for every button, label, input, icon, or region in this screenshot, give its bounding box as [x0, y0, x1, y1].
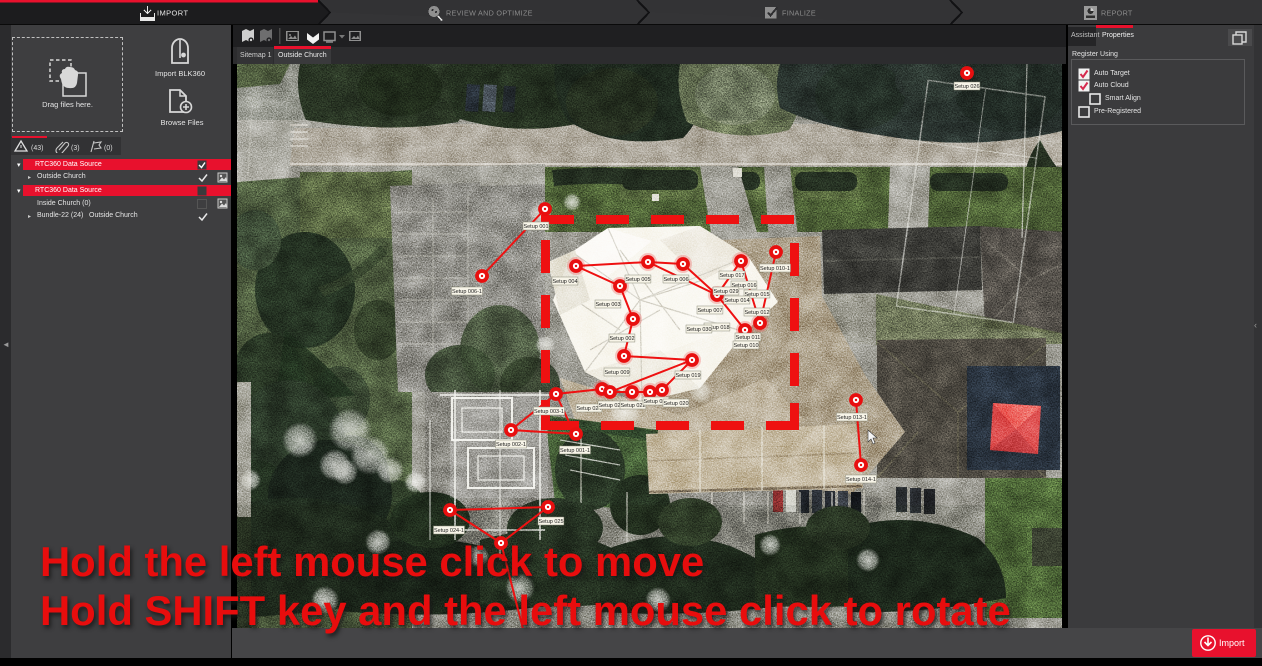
svg-text:Setup 004: Setup 004 [552, 279, 577, 285]
svg-text:Setup 014-1: Setup 014-1 [846, 477, 876, 483]
svg-text:Setup 009: Setup 009 [604, 370, 629, 376]
svg-text:Setup 012: Setup 012 [744, 310, 769, 316]
svg-text:Setup 002: Setup 002 [609, 336, 634, 342]
svg-text:IMPORT: IMPORT [157, 9, 188, 18]
svg-text:Setup 002-1: Setup 002-1 [496, 442, 526, 448]
svg-text:FINALIZE: FINALIZE [782, 9, 816, 18]
svg-text:Setup 020: Setup 020 [663, 401, 688, 407]
svg-text:Setup 030: Setup 030 [686, 327, 711, 333]
svg-text:Setup 013-1: Setup 013-1 [837, 415, 867, 421]
svg-text:Setup 011: Setup 011 [736, 335, 761, 341]
svg-text:Setup 006: Setup 006 [663, 277, 688, 283]
svg-text:Setup 017: Setup 017 [719, 273, 744, 279]
svg-text:Setup 006-1: Setup 006-1 [452, 289, 482, 295]
svg-text:Setup 026: Setup 026 [954, 84, 979, 90]
svg-text:Setup 005: Setup 005 [625, 277, 650, 283]
svg-text:(43): (43) [31, 145, 43, 152]
svg-text:Setup 003-1: Setup 003-1 [534, 409, 564, 415]
svg-text:Setup 019: Setup 019 [675, 373, 700, 379]
svg-text:(3): (3) [71, 145, 80, 152]
svg-text:(0): (0) [104, 145, 113, 152]
svg-text:REPORT: REPORT [1101, 9, 1133, 18]
svg-text:REVIEW AND OPTIMIZE: REVIEW AND OPTIMIZE [446, 9, 533, 18]
svg-text:Setup 010-1: Setup 010-1 [760, 266, 790, 272]
svg-text:Setup 014: Setup 014 [724, 298, 749, 304]
svg-text:Setup 025: Setup 025 [538, 519, 563, 525]
svg-text:Setup 001: Setup 001 [523, 224, 548, 230]
svg-text:Setup 022: Setup 022 [620, 403, 645, 409]
svg-text:Setup 010: Setup 010 [733, 343, 758, 349]
svg-text:Setup 003: Setup 003 [595, 302, 620, 308]
svg-text:Setup 024-1: Setup 024-1 [434, 528, 464, 534]
svg-text:Setup 029: Setup 029 [713, 289, 738, 295]
svg-text:Setup 007: Setup 007 [697, 308, 722, 314]
svg-text:Setup 001-1: Setup 001-1 [560, 448, 590, 454]
